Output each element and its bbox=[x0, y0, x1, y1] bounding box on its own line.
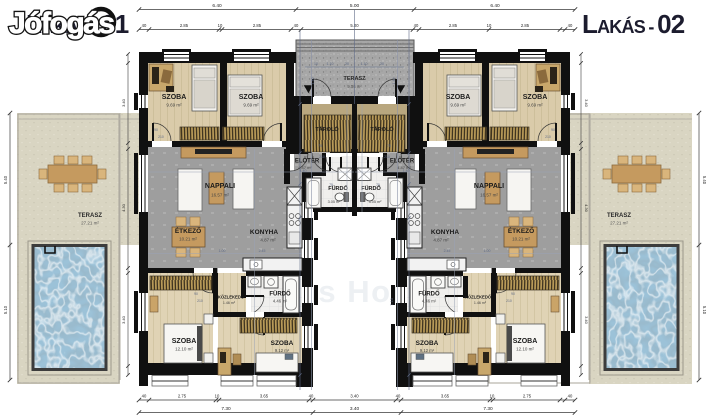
svg-text:9.69 m²: 9.69 m² bbox=[450, 103, 466, 108]
svg-text:3.65: 3.65 bbox=[441, 394, 450, 399]
svg-text:9.69 m²: 9.69 m² bbox=[243, 103, 259, 108]
svg-text:2.85: 2.85 bbox=[521, 23, 530, 28]
svg-text:3.40: 3.40 bbox=[584, 316, 589, 325]
svg-text:210: 210 bbox=[158, 135, 164, 139]
svg-text:5.40: 5.40 bbox=[702, 176, 707, 185]
svg-text:SZOBA: SZOBA bbox=[162, 94, 187, 101]
svg-text:210: 210 bbox=[506, 299, 512, 303]
svg-text:3.05 m²: 3.05 m² bbox=[369, 200, 383, 204]
svg-text:TERASZ: TERASZ bbox=[344, 76, 367, 82]
svg-text:10: 10 bbox=[215, 394, 220, 399]
svg-text:KÖZLEKEDŐ: KÖZLEKEDŐ bbox=[218, 295, 245, 300]
svg-text:90: 90 bbox=[194, 292, 198, 296]
svg-text:10.21 m²: 10.21 m² bbox=[512, 237, 530, 242]
svg-text:SZOBA: SZOBA bbox=[172, 338, 197, 345]
svg-text:40: 40 bbox=[294, 23, 299, 28]
svg-text:90: 90 bbox=[551, 128, 555, 132]
svg-text:6.40: 6.40 bbox=[212, 3, 222, 9]
svg-text:3.05 m²: 3.05 m² bbox=[328, 200, 342, 204]
svg-text:ELŐTÉR: ELŐTÉR bbox=[390, 157, 415, 165]
svg-text:5.40: 5.40 bbox=[3, 175, 8, 184]
svg-text:1.40: 1.40 bbox=[300, 169, 307, 173]
svg-text:75: 75 bbox=[376, 183, 380, 187]
svg-text:2.85: 2.85 bbox=[180, 23, 189, 28]
svg-text:4.46 m²: 4.46 m² bbox=[422, 299, 437, 304]
svg-text:1.00: 1.00 bbox=[219, 249, 226, 253]
svg-text:4.46 m²: 4.46 m² bbox=[273, 299, 288, 304]
svg-text:SZOBA: SZOBA bbox=[271, 340, 294, 347]
svg-text:5.10: 5.10 bbox=[3, 305, 8, 314]
svg-text:4.30: 4.30 bbox=[584, 204, 589, 213]
svg-text:NAPPALI: NAPPALI bbox=[474, 183, 504, 190]
svg-text:75: 75 bbox=[387, 144, 391, 148]
svg-text:2.45: 2.45 bbox=[444, 249, 451, 253]
svg-text:9.12 m²: 9.12 m² bbox=[275, 348, 290, 353]
svg-text:9.12 m²: 9.12 m² bbox=[420, 348, 435, 353]
svg-text:2.85: 2.85 bbox=[449, 23, 458, 28]
svg-text:9.69 m²: 9.69 m² bbox=[527, 103, 543, 108]
svg-text:3.40: 3.40 bbox=[584, 99, 589, 108]
svg-text:FÜRDŐ: FÜRDŐ bbox=[269, 291, 291, 298]
svg-text:10.21 m²: 10.21 m² bbox=[179, 237, 197, 242]
svg-text:210: 210 bbox=[545, 135, 551, 139]
svg-text:Jófogás: Jófogás bbox=[9, 7, 114, 40]
svg-text:5.00: 5.00 bbox=[350, 23, 359, 28]
svg-text:210: 210 bbox=[319, 155, 325, 159]
svg-text:5.10: 5.10 bbox=[702, 306, 707, 315]
svg-text:TÁROLÓ: TÁROLÓ bbox=[315, 125, 339, 133]
svg-text:SZOBA: SZOBA bbox=[416, 340, 439, 347]
svg-text:6.40: 6.40 bbox=[490, 3, 500, 9]
svg-text:20: 20 bbox=[380, 62, 384, 66]
svg-text:1.46 m²: 1.46 m² bbox=[223, 301, 236, 305]
svg-text:NAPPALI: NAPPALI bbox=[205, 183, 235, 190]
svg-text:1.10: 1.10 bbox=[327, 62, 334, 66]
svg-text:1.46 m²: 1.46 m² bbox=[474, 301, 487, 305]
svg-text:2.75: 2.75 bbox=[178, 394, 187, 399]
svg-text:3.65: 3.65 bbox=[260, 394, 269, 399]
svg-text:SZOBA: SZOBA bbox=[239, 94, 264, 101]
svg-text:7.13: 7.13 bbox=[390, 298, 394, 305]
svg-text:3.40: 3.40 bbox=[121, 98, 126, 107]
svg-text:ÉTKEZŐ: ÉTKEZŐ bbox=[175, 226, 201, 235]
svg-text:ÉTKEZŐ: ÉTKEZŐ bbox=[508, 226, 534, 235]
svg-text:10: 10 bbox=[487, 23, 492, 28]
svg-text:20: 20 bbox=[345, 62, 349, 66]
svg-text:27.21 m²: 27.21 m² bbox=[610, 221, 628, 226]
svg-text:40: 40 bbox=[142, 23, 147, 28]
svg-text:40: 40 bbox=[568, 394, 573, 399]
svg-text:12.10 m²: 12.10 m² bbox=[516, 347, 534, 352]
svg-text:SZOBA: SZOBA bbox=[446, 94, 471, 101]
svg-text:90: 90 bbox=[511, 292, 515, 296]
svg-text:1.40: 1.40 bbox=[403, 169, 410, 173]
svg-text:210: 210 bbox=[384, 155, 390, 159]
svg-text:10: 10 bbox=[314, 62, 318, 66]
svg-text:210: 210 bbox=[197, 299, 203, 303]
svg-text:3.40: 3.40 bbox=[350, 394, 359, 399]
svg-text:27.21 m²: 27.21 m² bbox=[81, 221, 99, 226]
svg-text:75: 75 bbox=[329, 183, 333, 187]
svg-text:2.45: 2.45 bbox=[259, 249, 266, 253]
svg-text:TERASZ: TERASZ bbox=[607, 213, 631, 219]
svg-text:2.85: 2.85 bbox=[253, 23, 262, 28]
svg-text:3.40: 3.40 bbox=[121, 315, 126, 324]
svg-text:TÁROLÓ: TÁROLÓ bbox=[370, 125, 394, 133]
svg-text:16.57 m²: 16.57 m² bbox=[480, 193, 498, 198]
svg-text:1.00: 1.00 bbox=[484, 249, 491, 253]
svg-text:90: 90 bbox=[154, 128, 158, 132]
svg-text:KONYHA: KONYHA bbox=[250, 229, 278, 236]
svg-text:9.69 m²: 9.69 m² bbox=[166, 103, 182, 108]
svg-text:3.40: 3.40 bbox=[350, 406, 360, 412]
svg-text:ELŐTÉR: ELŐTÉR bbox=[295, 157, 320, 165]
svg-text:2.75: 2.75 bbox=[523, 394, 532, 399]
svg-text:4.87 m²: 4.87 m² bbox=[433, 238, 449, 243]
svg-text:7.30: 7.30 bbox=[483, 406, 493, 412]
svg-text:40: 40 bbox=[142, 394, 147, 399]
svg-text:1.10: 1.10 bbox=[361, 62, 368, 66]
svg-text:75: 75 bbox=[318, 144, 322, 148]
svg-text:FÜRDŐ: FÜRDŐ bbox=[418, 291, 440, 298]
svg-text:SZOBA: SZOBA bbox=[523, 94, 548, 101]
svg-text:40: 40 bbox=[309, 394, 314, 399]
svg-text:1.40: 1.40 bbox=[392, 78, 396, 85]
svg-text:4.30: 4.30 bbox=[121, 203, 126, 212]
svg-text:10: 10 bbox=[218, 23, 223, 28]
svg-text:1.40: 1.40 bbox=[311, 78, 315, 85]
svg-text:40: 40 bbox=[414, 23, 419, 28]
svg-text:5.00: 5.00 bbox=[350, 3, 360, 9]
svg-text:10: 10 bbox=[490, 394, 495, 399]
svg-text:40: 40 bbox=[396, 394, 401, 399]
svg-text:40: 40 bbox=[568, 23, 573, 28]
svg-text:16.57 m²: 16.57 m² bbox=[211, 193, 229, 198]
svg-text:SZOBA: SZOBA bbox=[513, 338, 538, 345]
svg-text:KONYHA: KONYHA bbox=[431, 229, 459, 236]
svg-text:12.10 m²: 12.10 m² bbox=[175, 347, 193, 352]
svg-text:7.30: 7.30 bbox=[221, 406, 231, 412]
svg-text:TERASZ: TERASZ bbox=[78, 213, 102, 219]
svg-text:KÖZLEKEDŐ: KÖZLEKEDŐ bbox=[465, 295, 492, 300]
svg-text:4.87 m²: 4.87 m² bbox=[260, 238, 276, 243]
